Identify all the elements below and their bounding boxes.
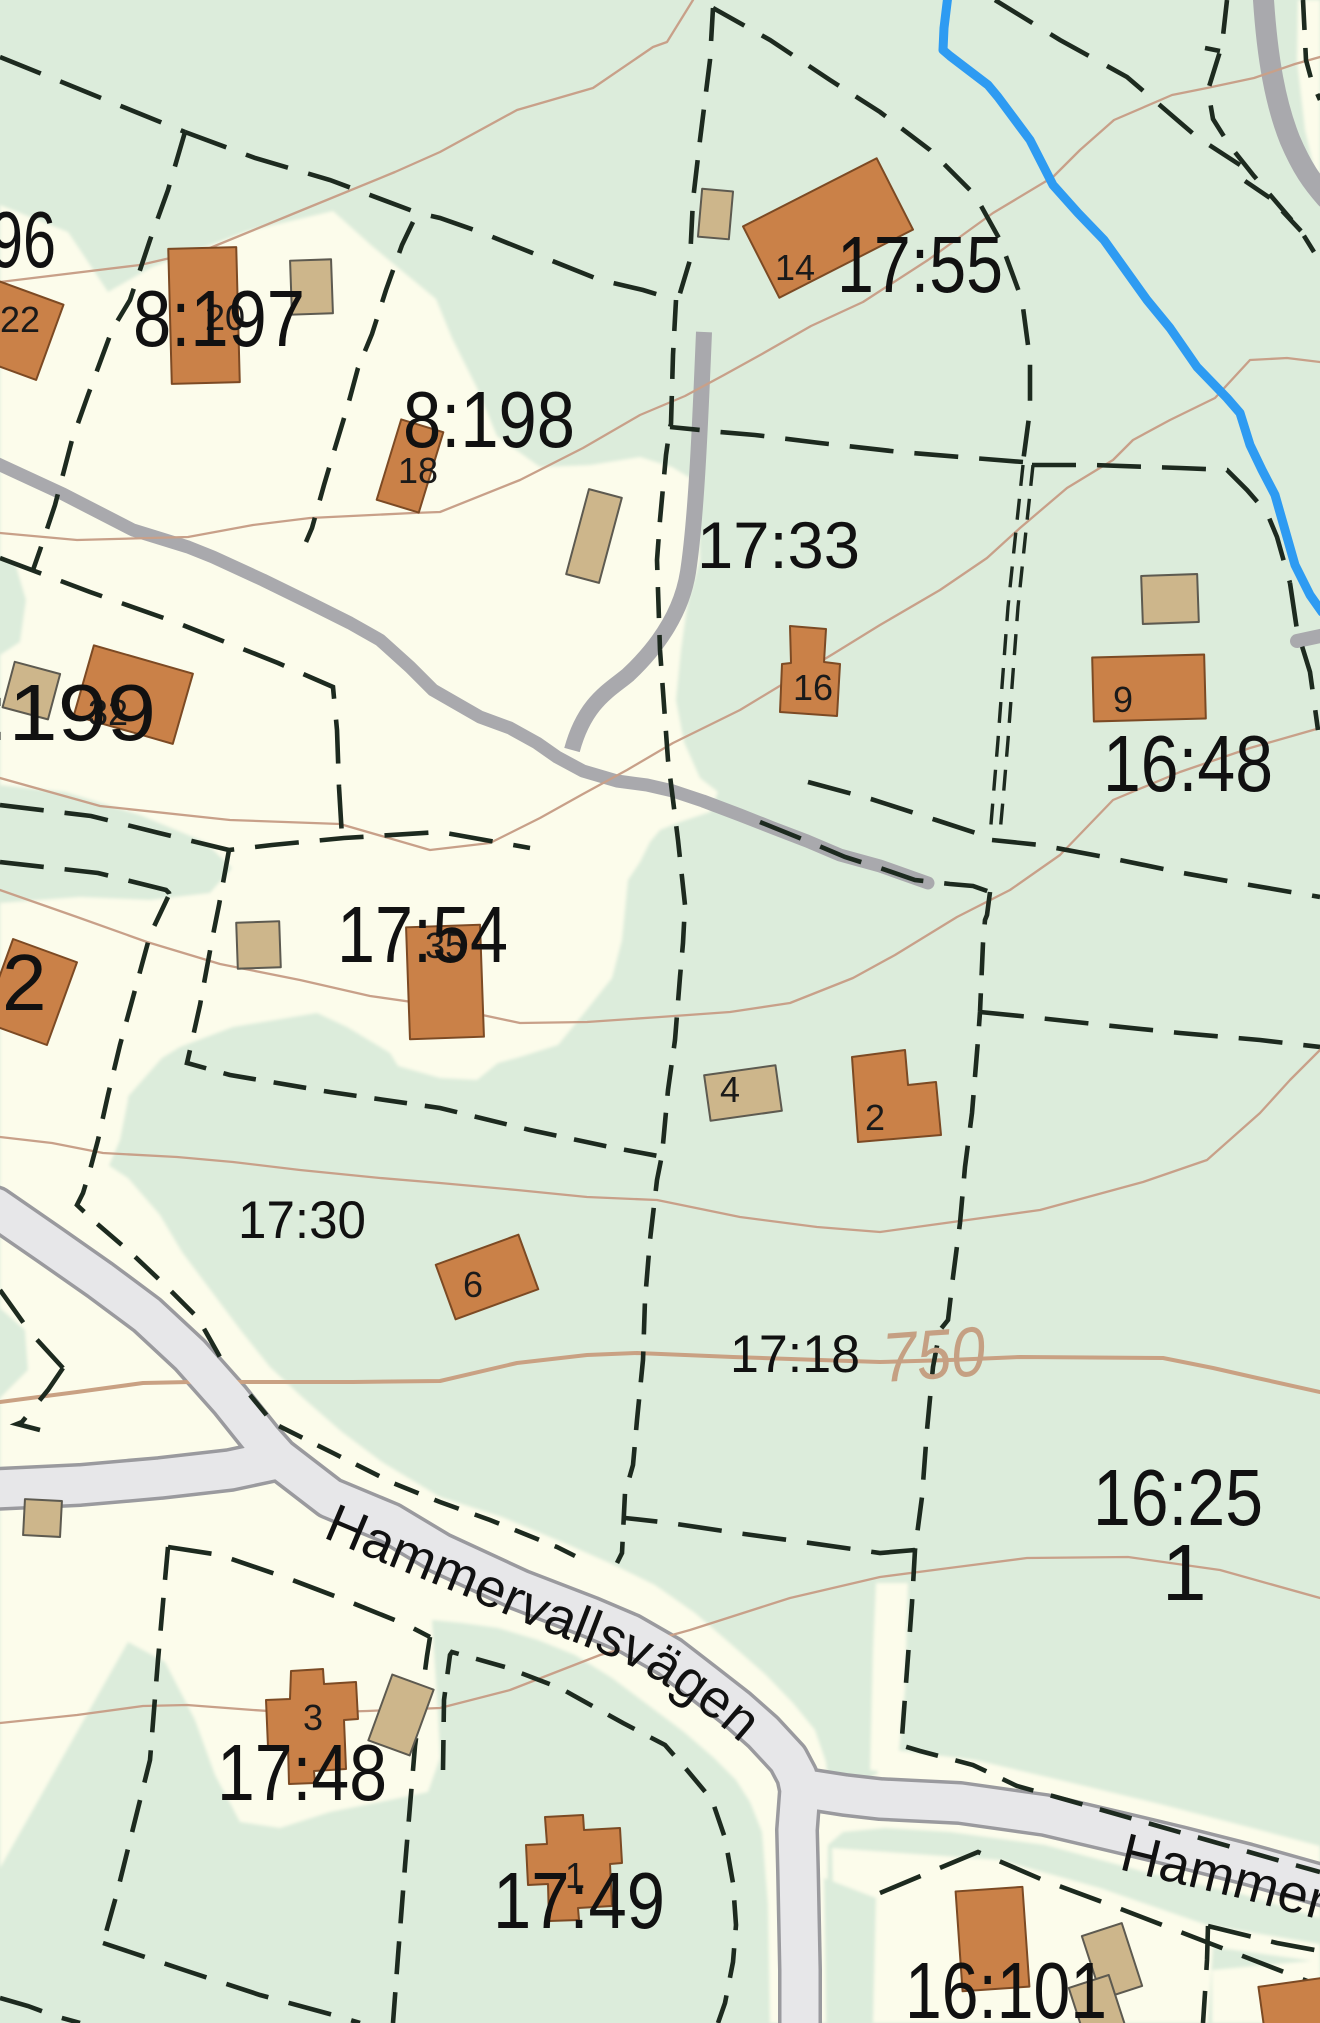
svg-text:750: 750 [880, 1312, 988, 1397]
svg-text:17:54: 17:54 [337, 890, 508, 979]
svg-text:14: 14 [775, 247, 815, 288]
svg-text:2: 2 [865, 1097, 885, 1138]
svg-text::199: :199 [0, 668, 156, 757]
svg-text:6: 6 [463, 1264, 483, 1305]
svg-text:17:30: 17:30 [238, 1191, 366, 1250]
svg-text:96: 96 [0, 195, 56, 284]
svg-text:17:55: 17:55 [837, 220, 1003, 309]
svg-text:17:33: 17:33 [697, 508, 860, 582]
svg-text:8:198: 8:198 [403, 375, 575, 464]
svg-text:2: 2 [2, 938, 47, 1027]
svg-text:16:48: 16:48 [1103, 719, 1273, 808]
svg-text:16: 16 [793, 667, 833, 708]
svg-text:17:18: 17:18 [730, 1325, 860, 1384]
svg-text:22: 22 [0, 299, 40, 340]
svg-text:1: 1 [1162, 1528, 1207, 1617]
svg-text:17:48: 17:48 [217, 1728, 387, 1817]
svg-text:9: 9 [1113, 679, 1133, 720]
svg-text:8:197: 8:197 [133, 274, 305, 363]
svg-text:17:49: 17:49 [493, 1856, 665, 1945]
svg-text:4: 4 [720, 1069, 740, 1110]
svg-text:16:101: 16:101 [905, 1946, 1107, 2023]
